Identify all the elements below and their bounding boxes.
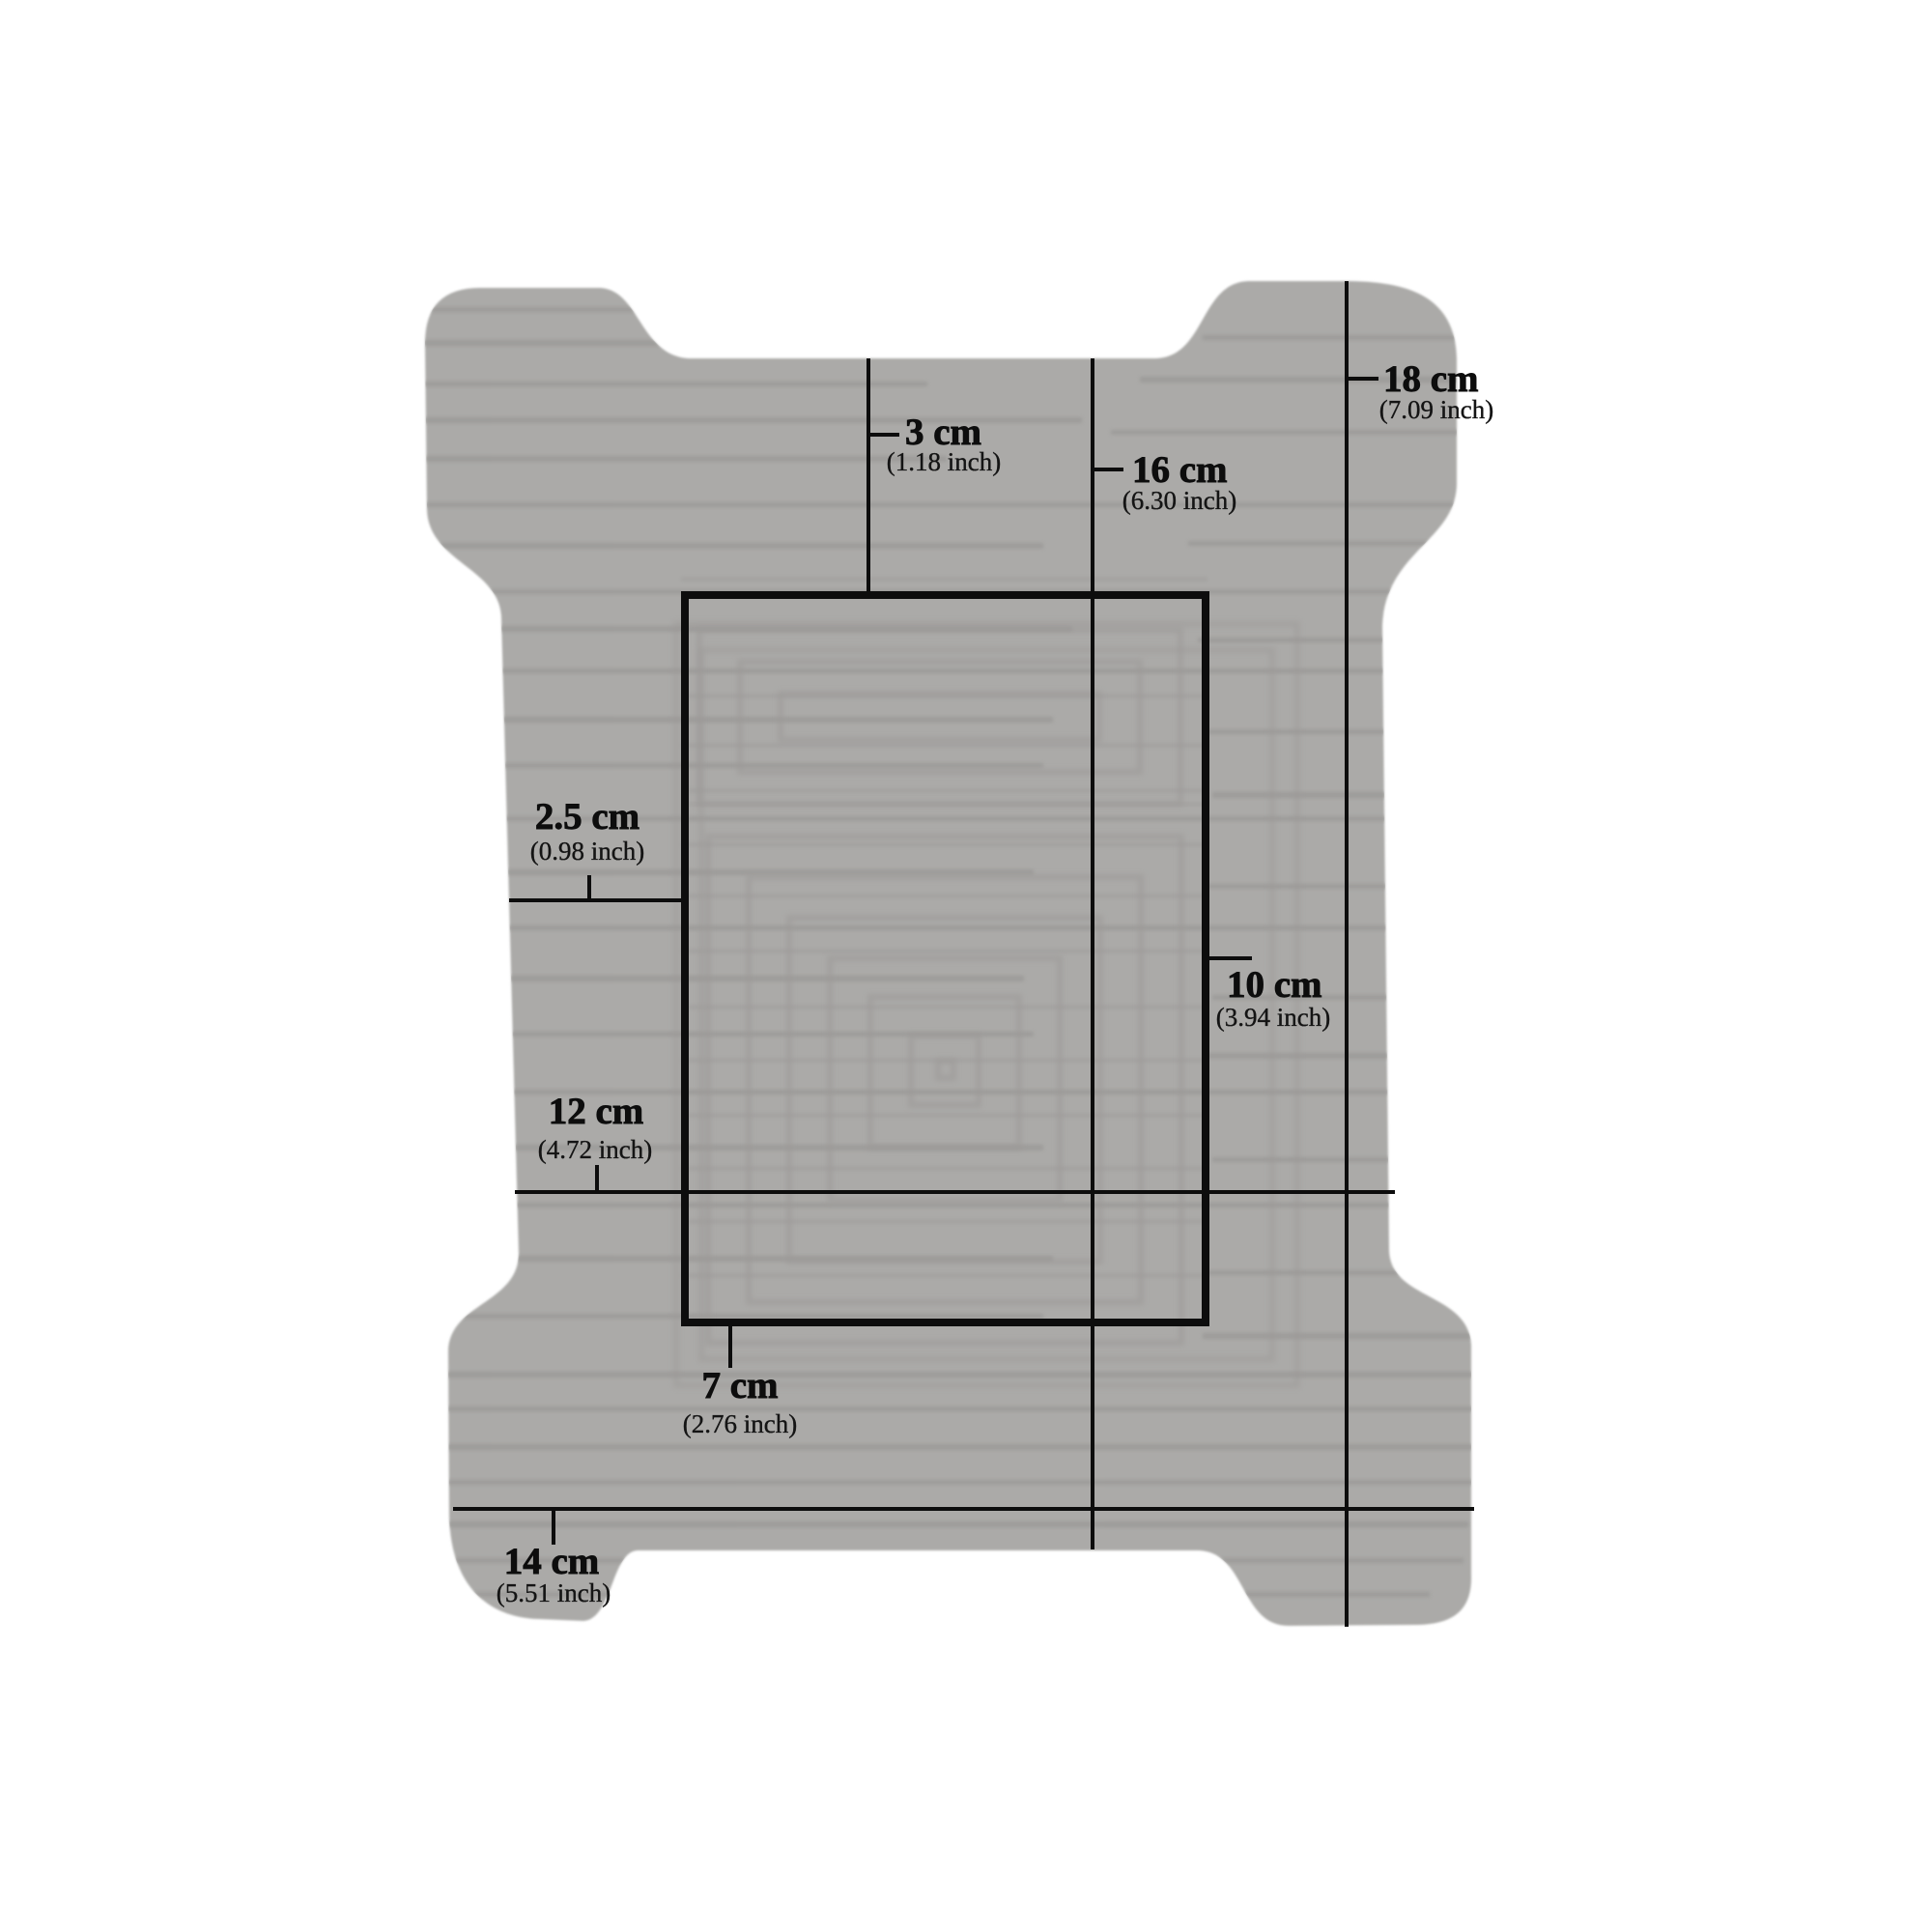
svg-text:(1.18 inch): (1.18 inch) [887,447,1001,476]
svg-text:(3.94 inch): (3.94 inch) [1216,1003,1330,1032]
svg-text:(4.72 inch): (4.72 inch) [538,1135,652,1164]
svg-text:16 cm: 16 cm [1132,449,1228,491]
svg-text:12 cm: 12 cm [549,1091,644,1132]
svg-text:(0.98 inch): (0.98 inch) [530,837,644,866]
svg-text:18 cm: 18 cm [1383,358,1479,400]
svg-text:2.5 cm: 2.5 cm [535,796,639,838]
svg-text:10 cm: 10 cm [1227,964,1322,1006]
svg-text:14 cm: 14 cm [504,1541,600,1582]
svg-text:(5.51 inch): (5.51 inch) [497,1578,611,1607]
svg-text:(7.09 inch): (7.09 inch) [1379,395,1493,424]
svg-text:(2.76 inch): (2.76 inch) [683,1409,797,1438]
svg-text:(6.30 inch): (6.30 inch) [1122,486,1236,515]
svg-text:7 cm: 7 cm [701,1365,778,1406]
